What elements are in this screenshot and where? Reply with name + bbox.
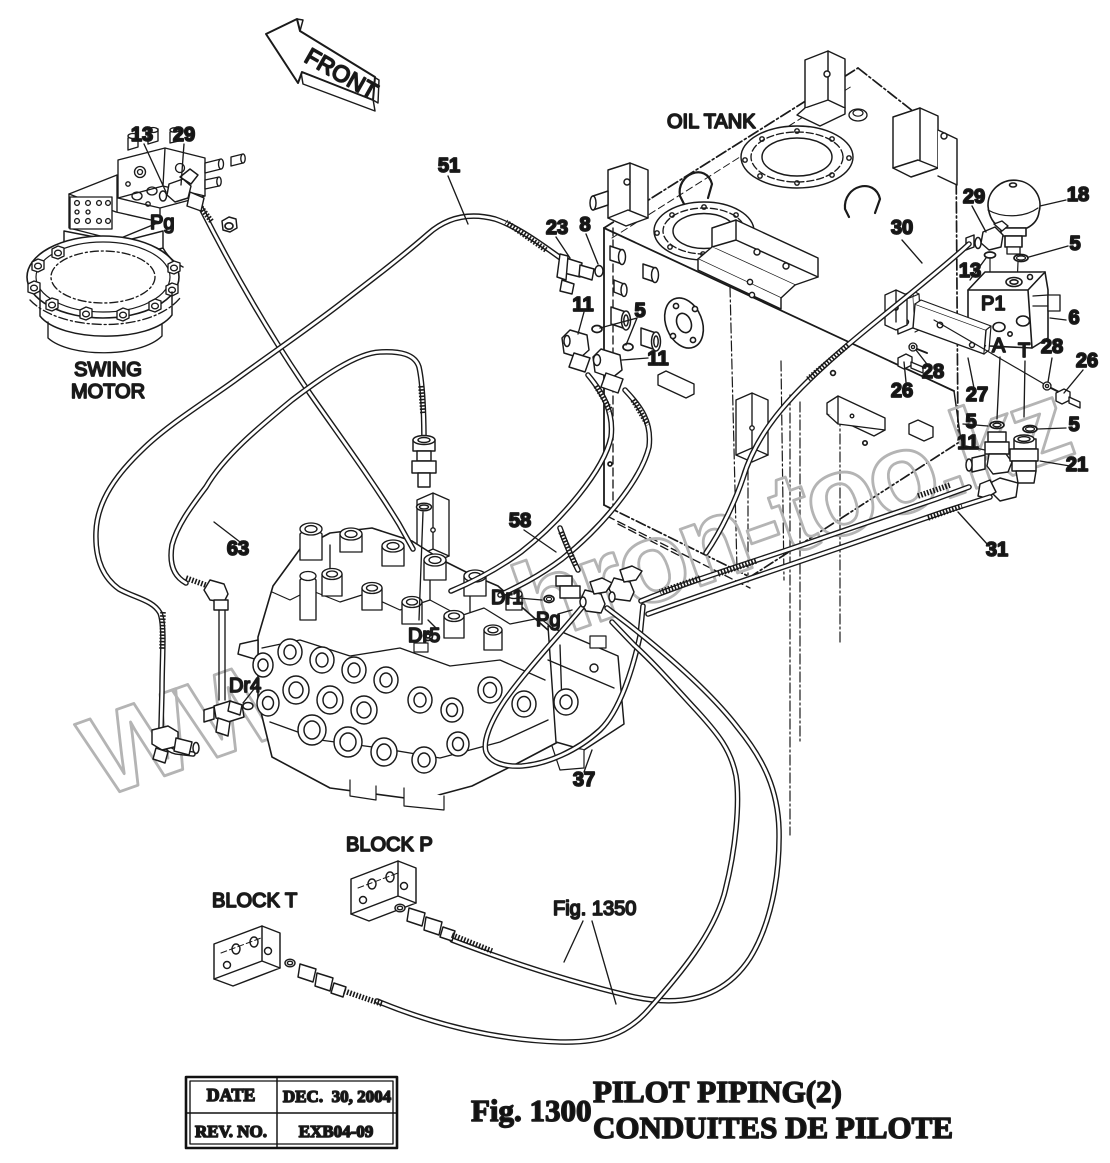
svg-text:5: 5 (634, 300, 645, 322)
svg-text:13: 13 (131, 124, 153, 146)
svg-text:26: 26 (1076, 350, 1098, 372)
svg-text:13: 13 (959, 260, 981, 282)
svg-text:Pg: Pg (536, 609, 560, 631)
svg-text:29: 29 (173, 124, 195, 146)
svg-text:BLOCK P: BLOCK P (346, 834, 433, 856)
svg-text:5: 5 (1068, 414, 1079, 436)
svg-text:DATE: DATE (207, 1085, 256, 1105)
svg-text:P1: P1 (981, 293, 1005, 315)
svg-text:BLOCK T: BLOCK T (212, 890, 297, 912)
svg-text:8: 8 (579, 214, 590, 236)
svg-text:EXB04-09: EXB04-09 (299, 1122, 374, 1141)
svg-text:REV. NO.: REV. NO. (195, 1122, 267, 1141)
svg-text:SWING: SWING (74, 359, 142, 381)
svg-text:DEC. 30, 2004: DEC. 30, 2004 (283, 1087, 392, 1106)
svg-text:Pg: Pg (150, 212, 174, 234)
svg-text:5: 5 (965, 411, 976, 433)
svg-text:28: 28 (922, 361, 944, 383)
svg-text:11: 11 (572, 294, 593, 316)
svg-text:OIL TANK: OIL TANK (667, 111, 756, 133)
svg-text:58: 58 (509, 510, 531, 532)
svg-text:11: 11 (957, 432, 978, 454)
svg-text:6: 6 (1068, 307, 1079, 329)
svg-text:11: 11 (647, 348, 668, 370)
svg-text:28: 28 (1041, 336, 1063, 358)
svg-text:23: 23 (546, 217, 568, 239)
svg-text:18: 18 (1067, 184, 1089, 206)
svg-text:37: 37 (573, 769, 595, 791)
svg-text:29: 29 (963, 186, 985, 208)
svg-text:MOTOR: MOTOR (71, 381, 145, 403)
svg-text:CONDUITES DE PILOTE: CONDUITES DE PILOTE (593, 1110, 953, 1145)
svg-text:51: 51 (438, 155, 460, 177)
svg-text:Dr4: Dr4 (229, 675, 261, 697)
svg-text:Dr5: Dr5 (408, 625, 440, 647)
svg-text:5: 5 (1069, 233, 1080, 255)
svg-text:PILOT PIPING(2): PILOT PIPING(2) (593, 1074, 842, 1109)
svg-text:26: 26 (891, 380, 913, 402)
svg-text:63: 63 (227, 538, 249, 560)
svg-text:27: 27 (966, 384, 988, 406)
svg-text:Dr1: Dr1 (491, 587, 523, 609)
svg-text:Fig. 1300: Fig. 1300 (471, 1093, 592, 1128)
svg-text:30: 30 (891, 217, 913, 239)
svg-text:31: 31 (986, 539, 1008, 561)
svg-text:21: 21 (1066, 454, 1088, 476)
svg-text:A: A (992, 335, 1006, 357)
svg-text:Fig. 1350: Fig. 1350 (553, 898, 636, 920)
svg-text:T: T (1018, 340, 1030, 362)
